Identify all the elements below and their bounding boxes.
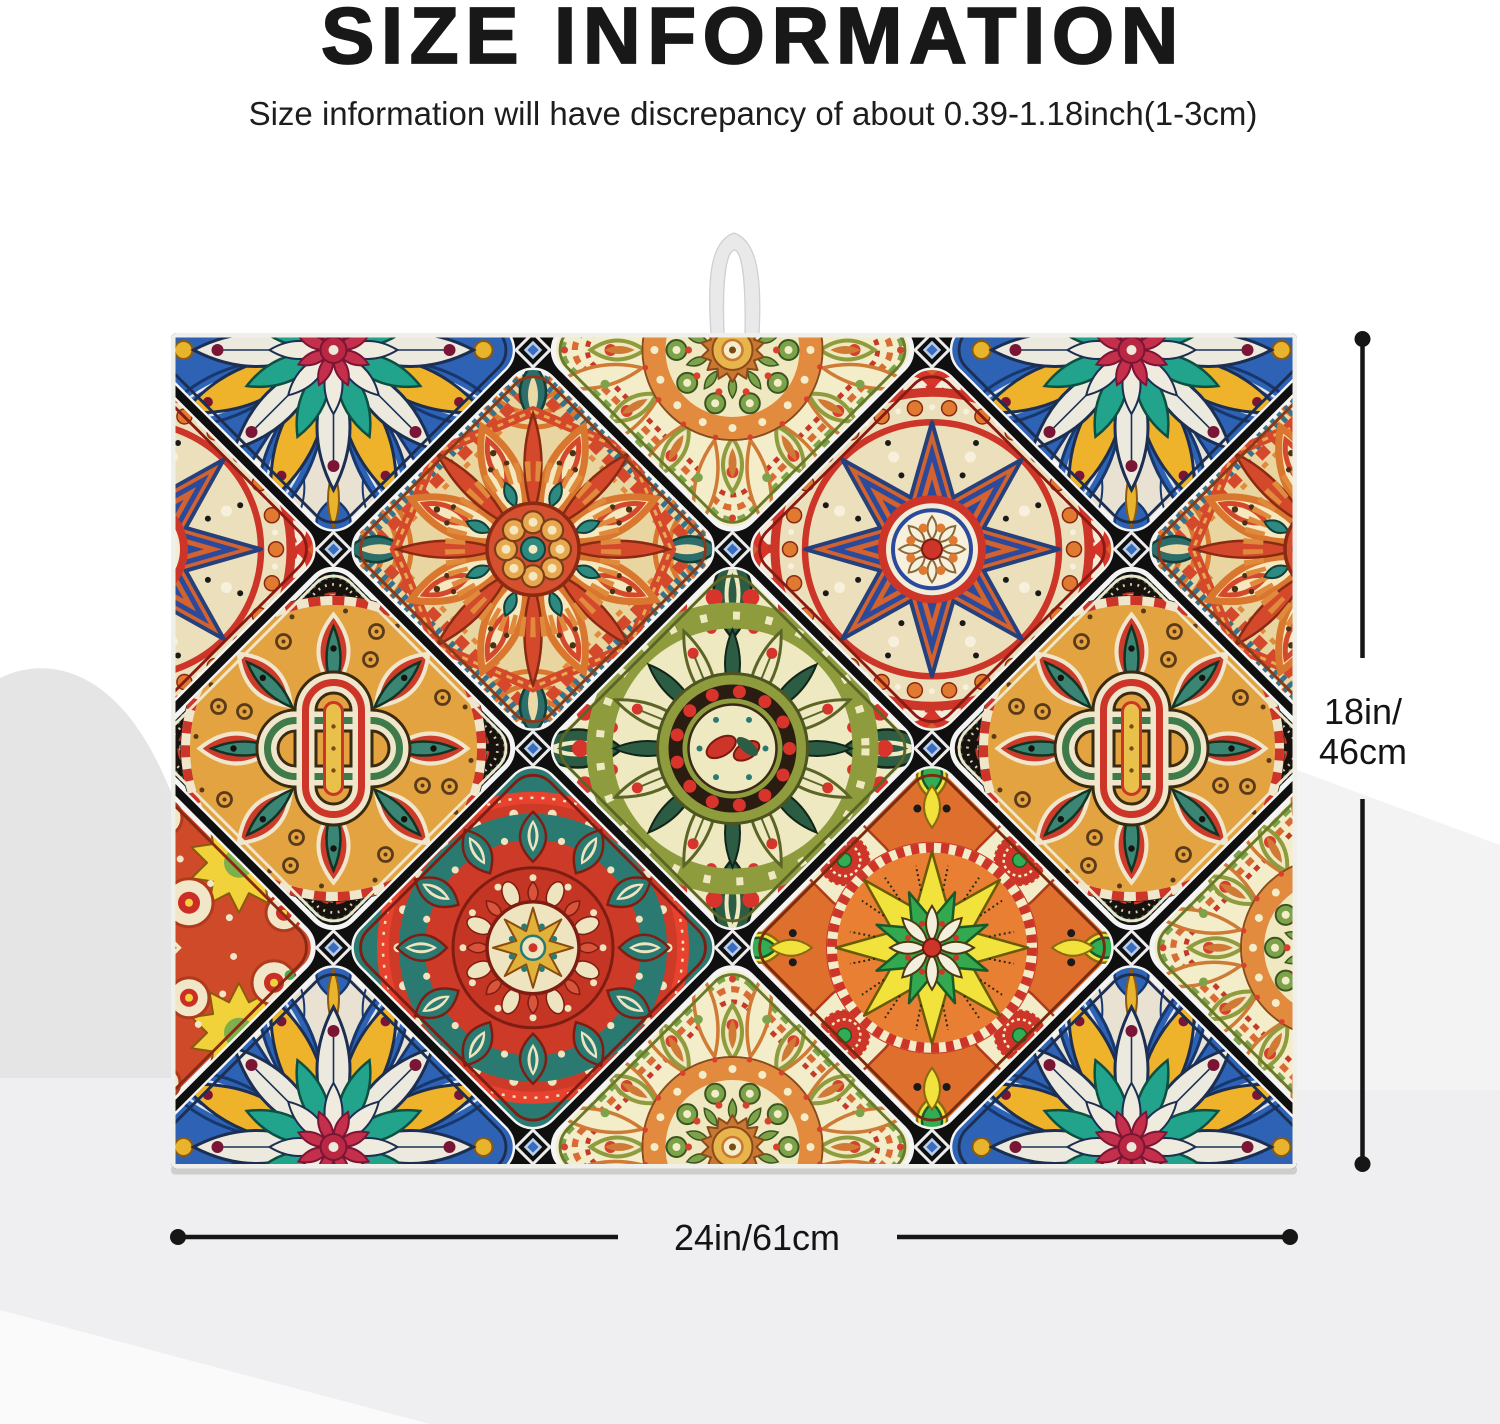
svg-text:24in/61cm: 24in/61cm xyxy=(674,1217,840,1258)
svg-text:Size information will have dis: Size information will have discrepancy o… xyxy=(249,95,1258,132)
svg-text:46cm: 46cm xyxy=(1319,731,1407,772)
svg-text:18in/: 18in/ xyxy=(1324,691,1402,732)
svg-text:SIZE INFORMATION: SIZE INFORMATION xyxy=(321,0,1185,80)
